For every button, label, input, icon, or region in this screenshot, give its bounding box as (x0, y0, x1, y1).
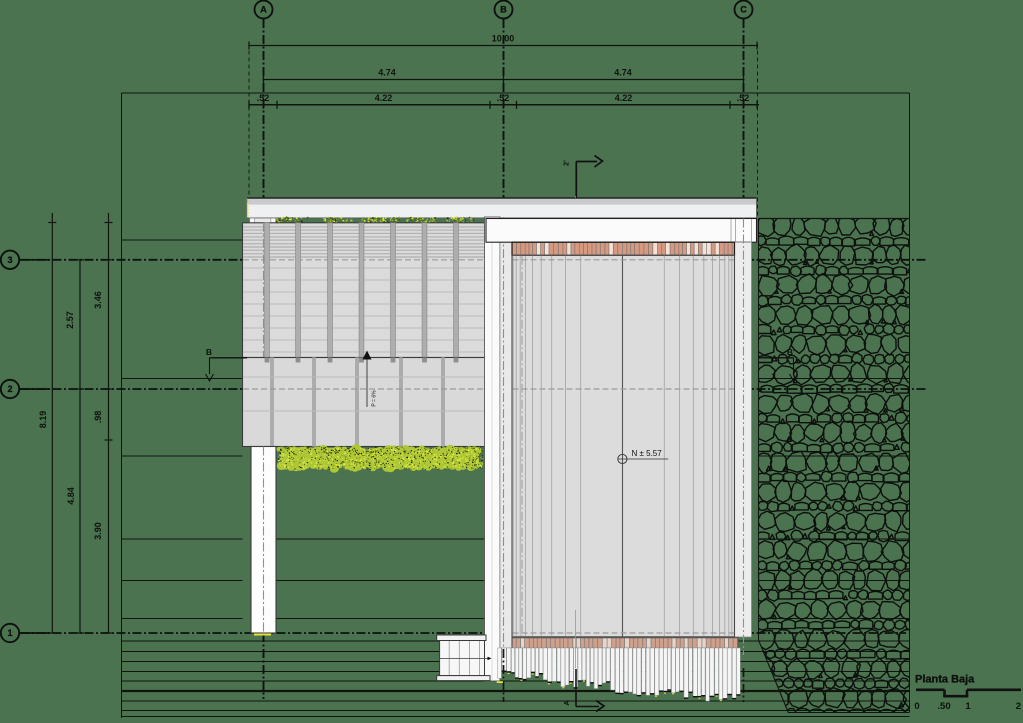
svg-text:4.74: 4.74 (378, 68, 396, 78)
svg-text:2: 2 (7, 384, 12, 394)
svg-text:A: A (564, 700, 571, 705)
svg-text:4.22: 4.22 (375, 93, 393, 103)
svg-text:8.19: 8.19 (38, 411, 48, 429)
svg-text:1: 1 (965, 701, 971, 712)
svg-text:3.46: 3.46 (93, 291, 103, 309)
svg-text:.98: .98 (93, 411, 103, 424)
svg-text:1: 1 (7, 628, 12, 638)
svg-text:2.57: 2.57 (65, 311, 75, 329)
svg-text:B: B (500, 5, 507, 15)
svg-text:B': B' (787, 347, 795, 357)
svg-text:2': 2' (562, 160, 571, 166)
svg-text:.52: .52 (497, 93, 510, 103)
svg-text:.52: .52 (257, 93, 270, 103)
svg-text:C: C (740, 5, 747, 15)
svg-text:N ± 5.57: N ± 5.57 (632, 449, 663, 458)
svg-text:.52: .52 (737, 93, 750, 103)
svg-text:4.84: 4.84 (66, 487, 76, 505)
svg-text:.50: .50 (937, 701, 950, 712)
svg-text:2: 2 (1016, 701, 1021, 712)
svg-text:Planta Baja: Planta Baja (915, 674, 975, 686)
svg-text:10.00: 10.00 (492, 34, 515, 44)
svg-text:0: 0 (914, 701, 919, 712)
svg-text:P = 6%: P = 6% (372, 390, 378, 407)
svg-text:3: 3 (7, 255, 12, 265)
svg-text:4.74: 4.74 (614, 68, 632, 78)
svg-text:B: B (206, 347, 212, 357)
svg-text:A: A (260, 5, 267, 15)
svg-text:4.22: 4.22 (615, 93, 633, 103)
svg-text:3.90: 3.90 (93, 522, 103, 540)
